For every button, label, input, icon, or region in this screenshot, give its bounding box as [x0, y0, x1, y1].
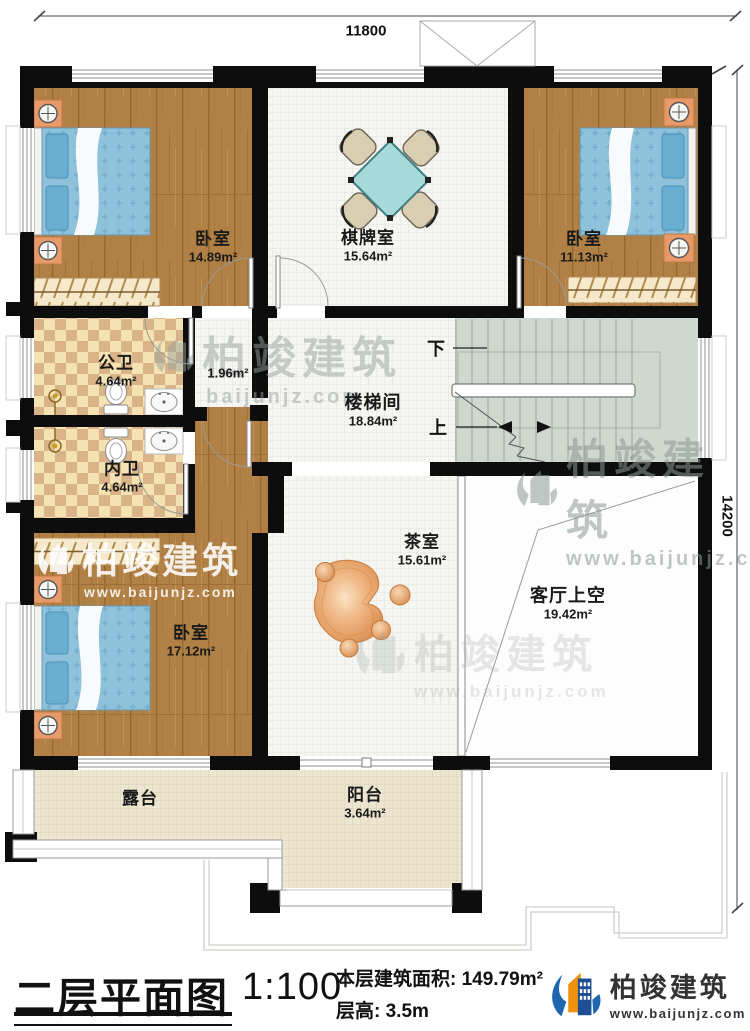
dimension-right: 14200 [719, 495, 736, 537]
floor-area-label: 本层建筑面积: [336, 969, 456, 990]
brand-website: www.baijunjz.com [610, 1006, 746, 1021]
stair-handrail [452, 384, 635, 397]
floor-height-value: 3.5m [386, 1001, 429, 1022]
game-table-set [337, 126, 442, 232]
title-block: 二层平面图 1:100 本层建筑面积: 149.79m² 层高: 3.5m 柏竣… [0, 958, 750, 1031]
brand-name: 柏竣建筑 [610, 966, 746, 1005]
floor-height-label: 层高: [336, 1001, 380, 1022]
stair-up-label: 上 [429, 414, 447, 440]
floor-area-value: 149.79m² [462, 969, 543, 990]
title-underline [14, 1012, 232, 1026]
bed-top-left [34, 128, 150, 235]
plan-scale: 1:100 [242, 966, 342, 1009]
dimension-top: 11800 [346, 23, 387, 40]
floor-area-line: 本层建筑面积: 149.79m² [336, 964, 543, 991]
stair-down-label: 下 [427, 335, 445, 361]
roof-skylight [420, 21, 535, 66]
balcony-door [300, 756, 433, 770]
bed-top-right [580, 128, 696, 235]
brand-logo-icon [546, 962, 604, 1024]
brand-block: 柏竣建筑 www.baijunjz.com [546, 962, 746, 1024]
floor-height-line: 层高: 3.5m [336, 996, 429, 1023]
bed-bottom-left [34, 606, 150, 710]
floor-plan-drawing [0, 0, 750, 958]
floor-plan-canvas: 柏竣建筑 baijunjz.com 柏竣建筑 www.baijunjz.com … [0, 0, 750, 1031]
